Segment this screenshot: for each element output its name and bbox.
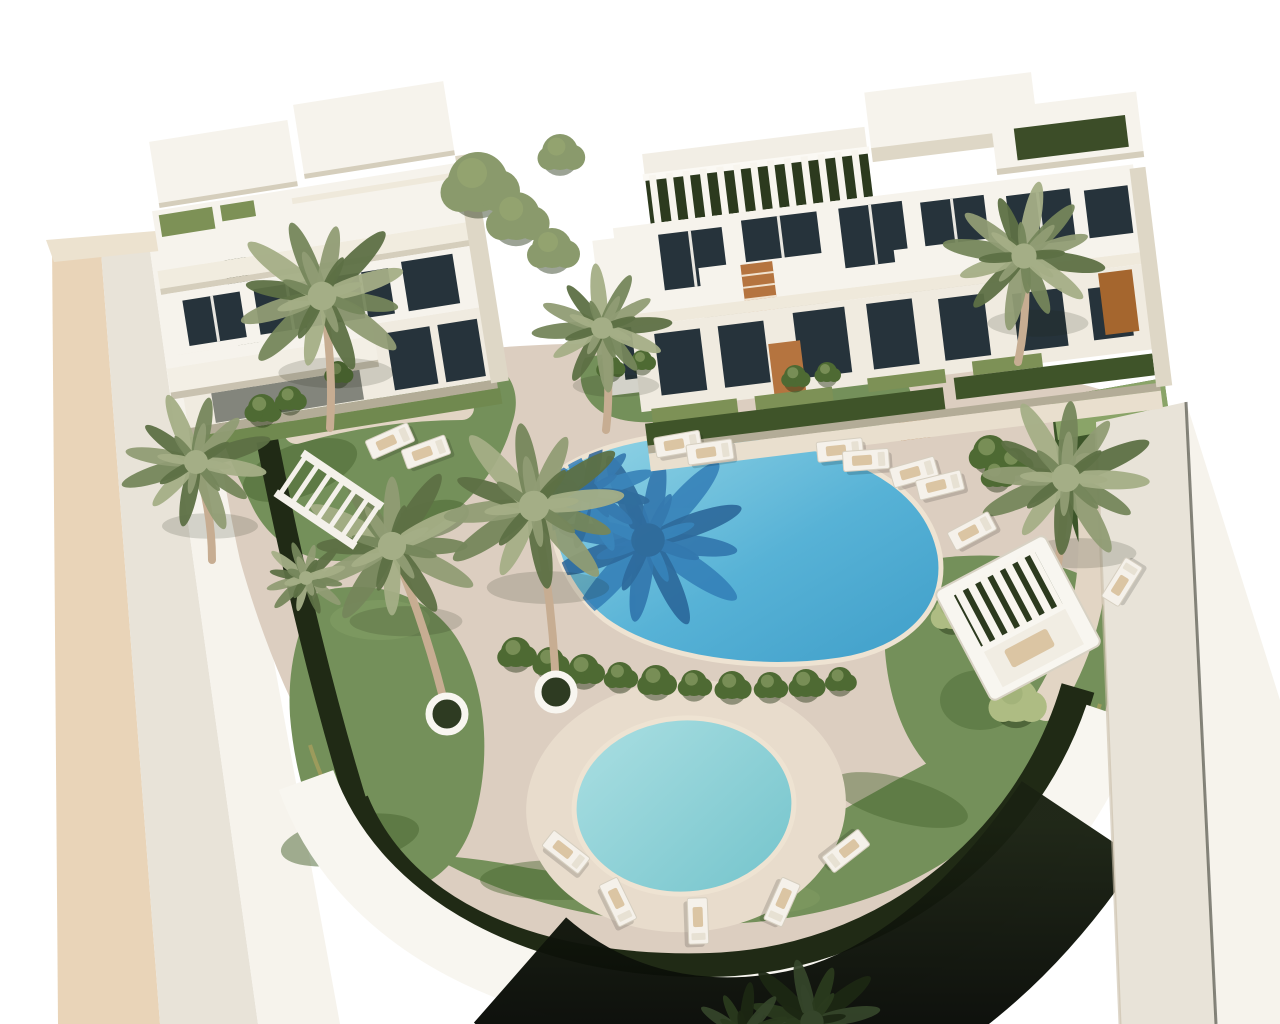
entrance-door — [386, 326, 439, 390]
palm-ground-shadow — [988, 310, 1089, 337]
window — [401, 254, 460, 312]
palm-planter — [429, 696, 465, 732]
lounger-cushion — [693, 907, 704, 927]
render-canvas — [0, 0, 1280, 1024]
lounger-headrest — [691, 933, 705, 940]
palm-crown — [184, 450, 208, 474]
palm-ground-shadow — [350, 606, 463, 636]
palm-crown — [591, 317, 613, 339]
palm-ground-shadow — [573, 374, 659, 397]
palm-crown — [631, 523, 665, 557]
lounger-headrest — [877, 452, 885, 466]
palm-crown — [378, 532, 406, 560]
palm-crown — [519, 491, 550, 522]
palm-crown — [308, 282, 337, 311]
window — [1084, 185, 1134, 238]
patio-door — [866, 298, 920, 369]
patio-door — [718, 321, 771, 388]
palm-planter — [538, 674, 574, 710]
palm-ground-shadow — [278, 357, 393, 388]
sun-lounger — [842, 448, 893, 475]
palm-crown — [299, 571, 313, 585]
palm-crown — [1052, 464, 1080, 492]
patio-door — [654, 328, 707, 395]
sun-lounger — [683, 898, 709, 948]
palm-crown — [1011, 243, 1036, 268]
architectural-render — [0, 0, 1280, 1024]
lounger-cushion — [852, 455, 873, 466]
